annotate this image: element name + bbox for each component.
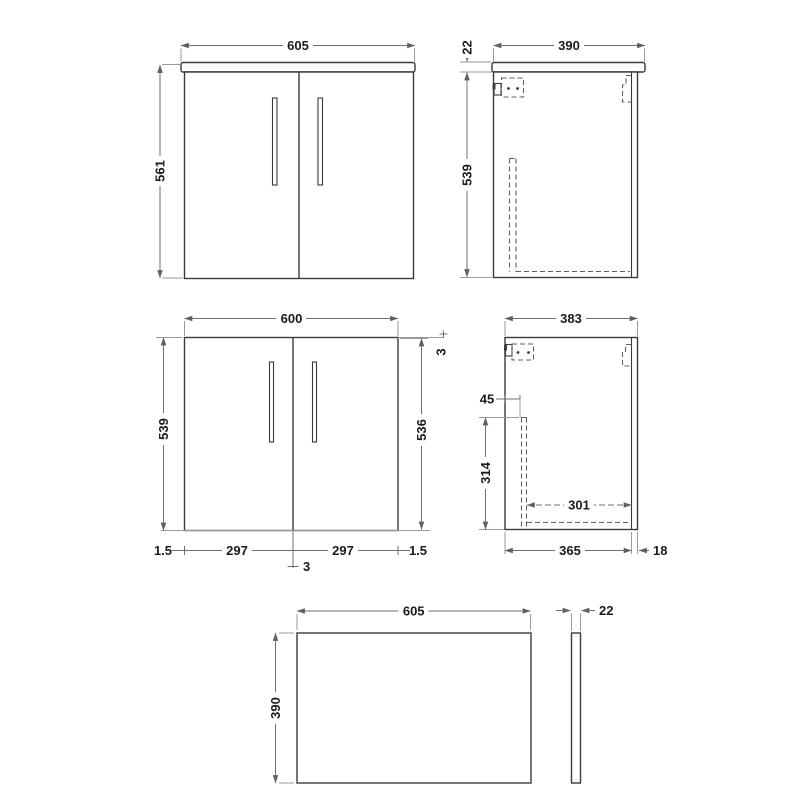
dim-label-back-panel-height: 314 xyxy=(478,461,493,483)
dim-front-width: 605 xyxy=(181,38,415,61)
dim-label-front-height: 561 xyxy=(153,160,168,182)
dim-side-depth: 390 xyxy=(494,38,646,61)
dim-label-left-edge-gap: 1.5 xyxy=(154,543,172,558)
dim-carcass-depth-overall: 383 xyxy=(505,311,638,336)
dim-label-door-thickness: 18 xyxy=(653,543,667,558)
wall-bracket-hook xyxy=(493,84,496,90)
dim-worktop-thickness: 22 xyxy=(556,603,613,631)
bracket-screw xyxy=(516,87,519,90)
dim-doors-width: 600 xyxy=(185,311,399,336)
dim-label-side-height: 539 xyxy=(460,164,475,186)
worktop-edge-profile xyxy=(572,633,581,783)
carcass-side xyxy=(494,72,638,278)
dim-label-right-edge-gap: 1.5 xyxy=(409,543,427,558)
dim-worktop-width: 605 xyxy=(297,604,531,630)
dim-label-carcass-height: 539 xyxy=(156,418,171,440)
dim-label-worktop-depth: 390 xyxy=(268,697,283,719)
technical-drawing: 605 561 390 xyxy=(0,0,800,800)
dim-label-door-height: 536 xyxy=(414,419,429,441)
door-handle-left xyxy=(273,98,278,185)
dim-center-gap: 3 xyxy=(288,531,311,575)
door-handle-left xyxy=(270,362,274,442)
dim-label-worktop-thickness-plan: 22 xyxy=(599,603,613,618)
dim-label-center-gap: 3 xyxy=(303,559,310,574)
dim-door-height: 536 xyxy=(400,339,429,530)
dim-carcass-body-depth: 365 xyxy=(505,532,632,558)
dim-worktop-thickness: 22 xyxy=(460,37,493,80)
side-view-with-worktop: 390 22 539 xyxy=(460,37,646,278)
worktop-front-edge xyxy=(181,63,415,73)
side-carcass-view: 383 45 314 301 365 xyxy=(478,311,667,558)
dim-label-carcass-body-depth: 365 xyxy=(559,543,581,558)
dim-label-top-gap: 3 xyxy=(434,348,449,355)
dim-door-thickness: 18 xyxy=(638,532,668,558)
dim-side-height: 539 xyxy=(460,80,493,278)
technical-drawing-page: 605 561 390 xyxy=(0,0,800,800)
dim-label-front-width: 605 xyxy=(287,38,309,53)
worktop-plan-view: 605 390 22 xyxy=(268,603,613,783)
dim-label-internal-depth: 301 xyxy=(568,498,590,513)
dim-label-worktop-thickness: 22 xyxy=(460,40,475,54)
dim-label-right-door-width: 297 xyxy=(332,543,354,558)
dim-door-widths-row: 1.5 297 297 1.5 xyxy=(154,543,427,558)
dim-label-carcass-depth-overall: 383 xyxy=(560,311,582,326)
dim-carcass-height: 539 xyxy=(156,338,182,531)
wall-bracket-hook xyxy=(504,345,507,351)
door-pair xyxy=(185,338,399,531)
dim-front-height: 561 xyxy=(153,65,184,279)
worktop-plan xyxy=(297,633,531,783)
bracket-screw xyxy=(517,351,520,354)
worktop-side-profile xyxy=(492,63,645,73)
dim-label-worktop-width: 605 xyxy=(403,604,425,619)
door-handle-right xyxy=(318,98,323,185)
dim-label-doors-width: 600 xyxy=(281,311,303,326)
dim-label-back-panel-offset: 45 xyxy=(480,392,494,407)
front-view-with-worktop: 605 561 xyxy=(153,38,416,278)
bracket-screw xyxy=(507,87,510,90)
bracket-screw xyxy=(527,351,530,354)
dim-top-gap: 3 xyxy=(434,331,449,356)
dim-label-side-depth: 390 xyxy=(558,38,580,53)
dim-worktop-depth: 390 xyxy=(268,633,294,783)
door-handle-right xyxy=(313,362,317,442)
front-doors-view: 3 600 539 536 1.5 297 xyxy=(154,311,449,574)
dim-label-left-door-width: 297 xyxy=(226,543,248,558)
